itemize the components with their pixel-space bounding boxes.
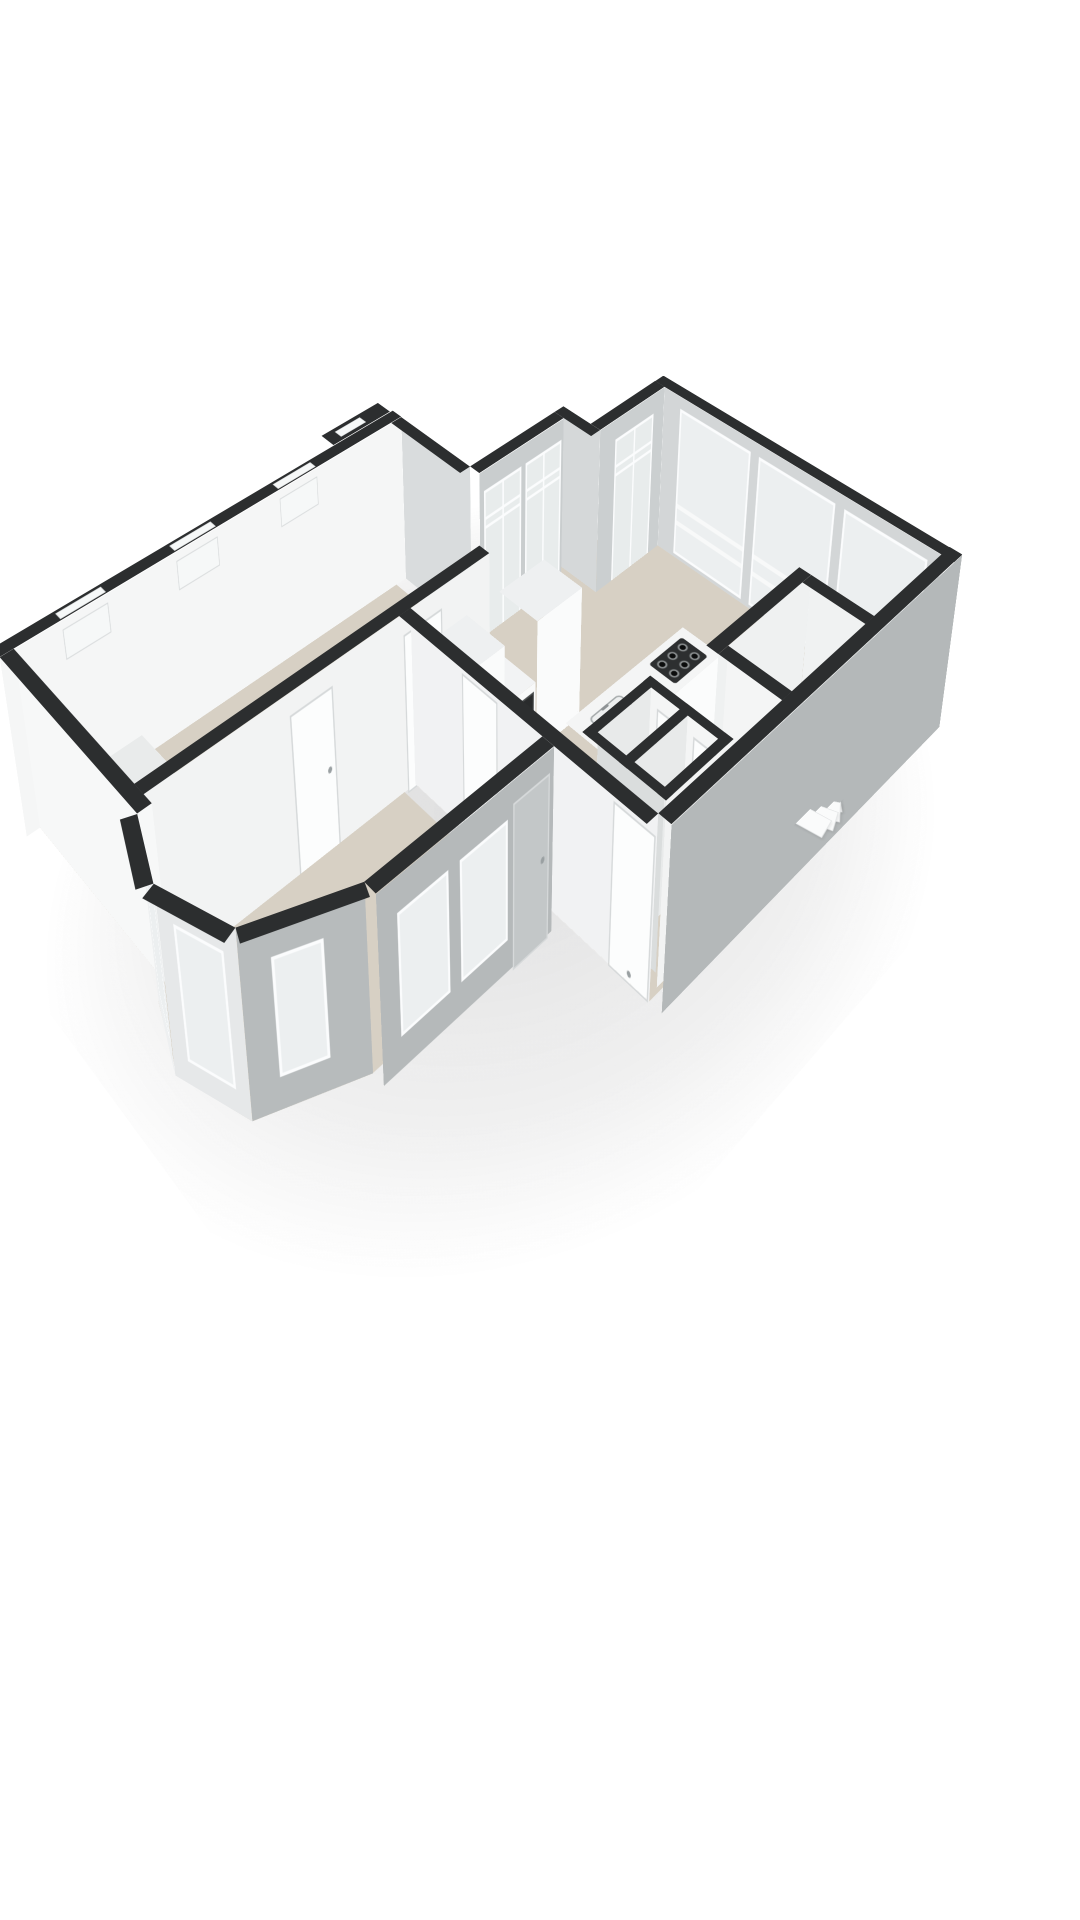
jog-wall-face (561, 407, 600, 593)
interior-door (608, 801, 656, 1003)
front-window (397, 870, 450, 1037)
bay-window (271, 938, 331, 1077)
vertical-stretch-wrapper (0, 0, 1080, 1920)
front-window (460, 820, 508, 983)
bay-window (173, 924, 236, 1090)
floorplan-3d-scene (0, 462, 984, 1372)
floorplan-canvas (0, 0, 1080, 1920)
front-door (513, 773, 550, 971)
